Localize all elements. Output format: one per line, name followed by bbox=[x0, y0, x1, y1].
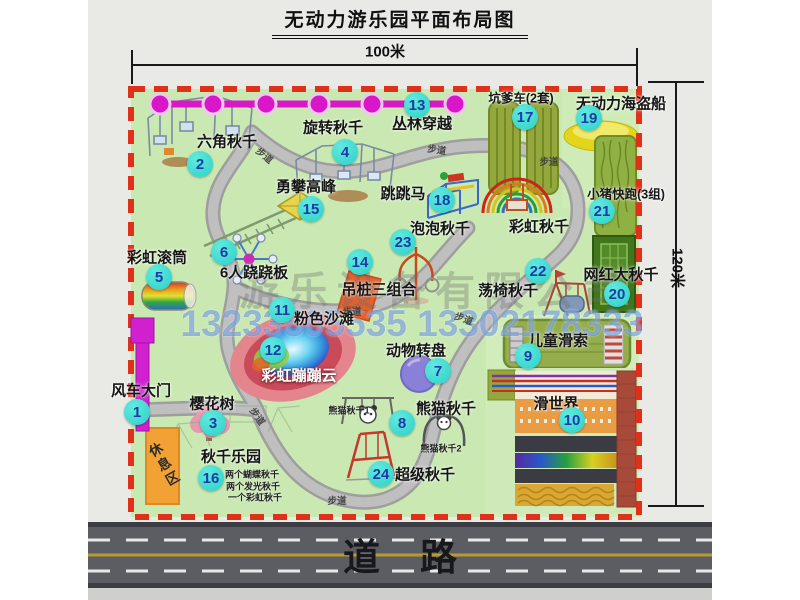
attraction-super-swing-badge: 24 bbox=[368, 461, 394, 487]
attraction-rotating-swing-label: 旋转秋千 bbox=[303, 117, 363, 138]
attraction-swing-chair-label: 荡椅秋千 bbox=[478, 280, 538, 301]
attraction-super-swing-label: 超级秋千 bbox=[395, 464, 455, 485]
attraction-hanging-piles-label: 吊桩三组合 bbox=[341, 279, 416, 300]
attraction-rainbow-swing-label: 彩虹秋千 bbox=[509, 216, 569, 237]
dimension-height-label: 120米 bbox=[668, 248, 689, 288]
attraction-bubble-swing-label: 泡泡秋千 bbox=[410, 218, 470, 239]
footpath-label-2: 步道 bbox=[427, 141, 448, 158]
attraction-cherry-tree-badge: 3 bbox=[200, 410, 226, 436]
attraction-panda-swing-label: 熊猫秋千 bbox=[416, 398, 476, 419]
attraction-rainbow-cloud-badge: 12 bbox=[260, 337, 286, 363]
attraction-swing-park-badge: 16 bbox=[198, 465, 224, 491]
attraction-windmill-gate-label: 风车大门 bbox=[111, 380, 171, 401]
attraction-peak-climbing-badge: 15 bbox=[298, 196, 324, 222]
attraction-slide-world-badge: 10 bbox=[559, 407, 585, 433]
attraction-animal-turntable-badge: 7 bbox=[425, 358, 451, 384]
attraction-six-seesaw-label: 6人跷跷板 bbox=[220, 262, 288, 283]
footpath-label-4: 步道 bbox=[342, 304, 361, 318]
attraction-big-swing-badge: 20 bbox=[604, 281, 630, 307]
page-title-wrap: 无动力游乐园平面布局图 bbox=[88, 5, 712, 39]
attraction-peak-climbing-label: 勇攀高峰 bbox=[276, 176, 336, 197]
page-title: 无动力游乐园平面布局图 bbox=[272, 5, 527, 39]
attraction-panda-swing-badge: 8 bbox=[389, 410, 415, 436]
attraction-swing-park-label: 秋千乐园 bbox=[201, 446, 261, 467]
attraction-six-seesaw-badge: 6 bbox=[211, 239, 237, 265]
attraction-panda-swing-sublabel-1: 熊猫秋千1 bbox=[328, 404, 369, 417]
road-label-wrap: 道路 bbox=[88, 527, 712, 581]
attraction-swing-chair-badge: 22 bbox=[525, 258, 551, 284]
attraction-jumping-horse-badge: 18 bbox=[429, 187, 455, 213]
attraction-bubble-swing-badge: 23 bbox=[390, 229, 416, 255]
attraction-windmill-gate-badge: 1 bbox=[124, 399, 150, 425]
attraction-kids-zipline-badge: 9 bbox=[515, 343, 541, 369]
footpath-label-3: 步道 bbox=[539, 154, 558, 168]
attraction-pink-beach-badge: 11 bbox=[269, 297, 295, 323]
road-label: 道路 bbox=[343, 527, 497, 581]
attraction-hexagon-swing-badge: 2 bbox=[187, 151, 213, 177]
attraction-swing-park-sublabel-3: 一个彩虹秋千 bbox=[228, 491, 282, 504]
attraction-jumping-horse-label: 跳跳马 bbox=[380, 183, 425, 204]
screenshot-stage: 无动力游乐园平面布局图 100米 120米 游乐设备有限公司 132338055… bbox=[0, 0, 800, 600]
attraction-jungle-crossing-badge: 13 bbox=[404, 92, 430, 118]
attraction-pirate-ship-badge: 19 bbox=[576, 105, 602, 131]
footpath-label-7: 步道 bbox=[327, 493, 346, 507]
slide-world-icon bbox=[487, 368, 638, 514]
attraction-panda-swing-sublabel-2: 熊猫秋千2 bbox=[420, 442, 461, 455]
attraction-rotating-swing-badge: 4 bbox=[332, 139, 358, 165]
attraction-pig-run-badge: 21 bbox=[589, 198, 615, 224]
attraction-hanging-piles-badge: 14 bbox=[347, 249, 373, 275]
attraction-rainbow-roller-badge: 5 bbox=[146, 264, 172, 290]
attraction-pit-cars-badge: 17 bbox=[512, 104, 538, 130]
attraction-rainbow-cloud-label: 彩虹蹦蹦云 bbox=[261, 365, 336, 386]
attraction-hexagon-swing-label: 六角秋千 bbox=[197, 131, 257, 152]
dimension-width-label: 100米 bbox=[365, 41, 405, 62]
